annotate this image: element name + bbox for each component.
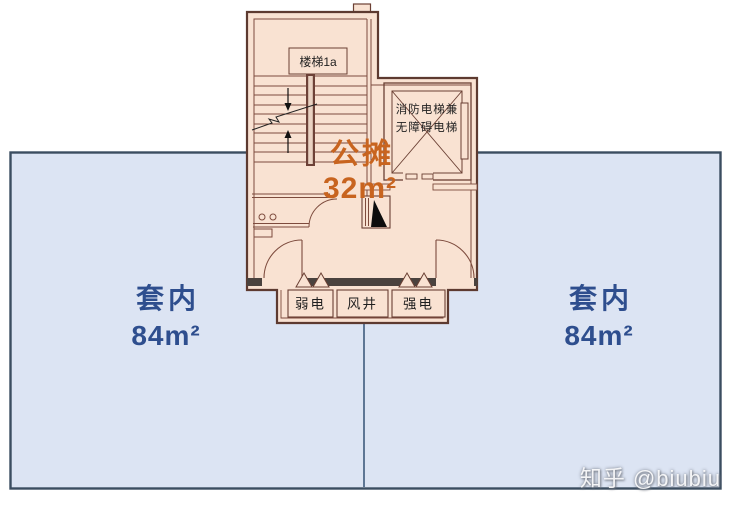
shared-area-value: 32m² bbox=[323, 174, 397, 204]
stair-label: 楼梯1a bbox=[299, 54, 337, 69]
elevator-sill-tick bbox=[406, 174, 417, 179]
service-rooms: 弱电 风井 强电 bbox=[288, 290, 445, 317]
watermark: 知乎 @biubiu bbox=[580, 461, 721, 493]
right-unit-value: 84m² bbox=[564, 322, 633, 350]
left-unit-label: 套内 bbox=[136, 285, 200, 313]
right-unit-label: 套内 bbox=[569, 285, 633, 313]
shared-area-label: 公摊 bbox=[330, 141, 394, 170]
floorplan-canvas: 楼梯1a 消防电梯兼 无障碍电梯 bbox=[0, 0, 733, 506]
service-label-strong-electric: 强电 bbox=[403, 297, 434, 312]
floorplan-drawing: 楼梯1a 消防电梯兼 无障碍电梯 bbox=[0, 0, 733, 506]
elevator-label-line2: 无障碍电梯 bbox=[396, 120, 459, 134]
service-label-weak-electric: 弱电 bbox=[295, 297, 326, 312]
elevator-label-line1: 消防电梯兼 bbox=[396, 102, 459, 116]
service-label-air-shaft: 风井 bbox=[347, 297, 378, 312]
elevator-rail-box bbox=[461, 103, 468, 159]
elevator-sill-tick bbox=[422, 174, 433, 179]
left-unit-value: 84m² bbox=[131, 322, 200, 350]
